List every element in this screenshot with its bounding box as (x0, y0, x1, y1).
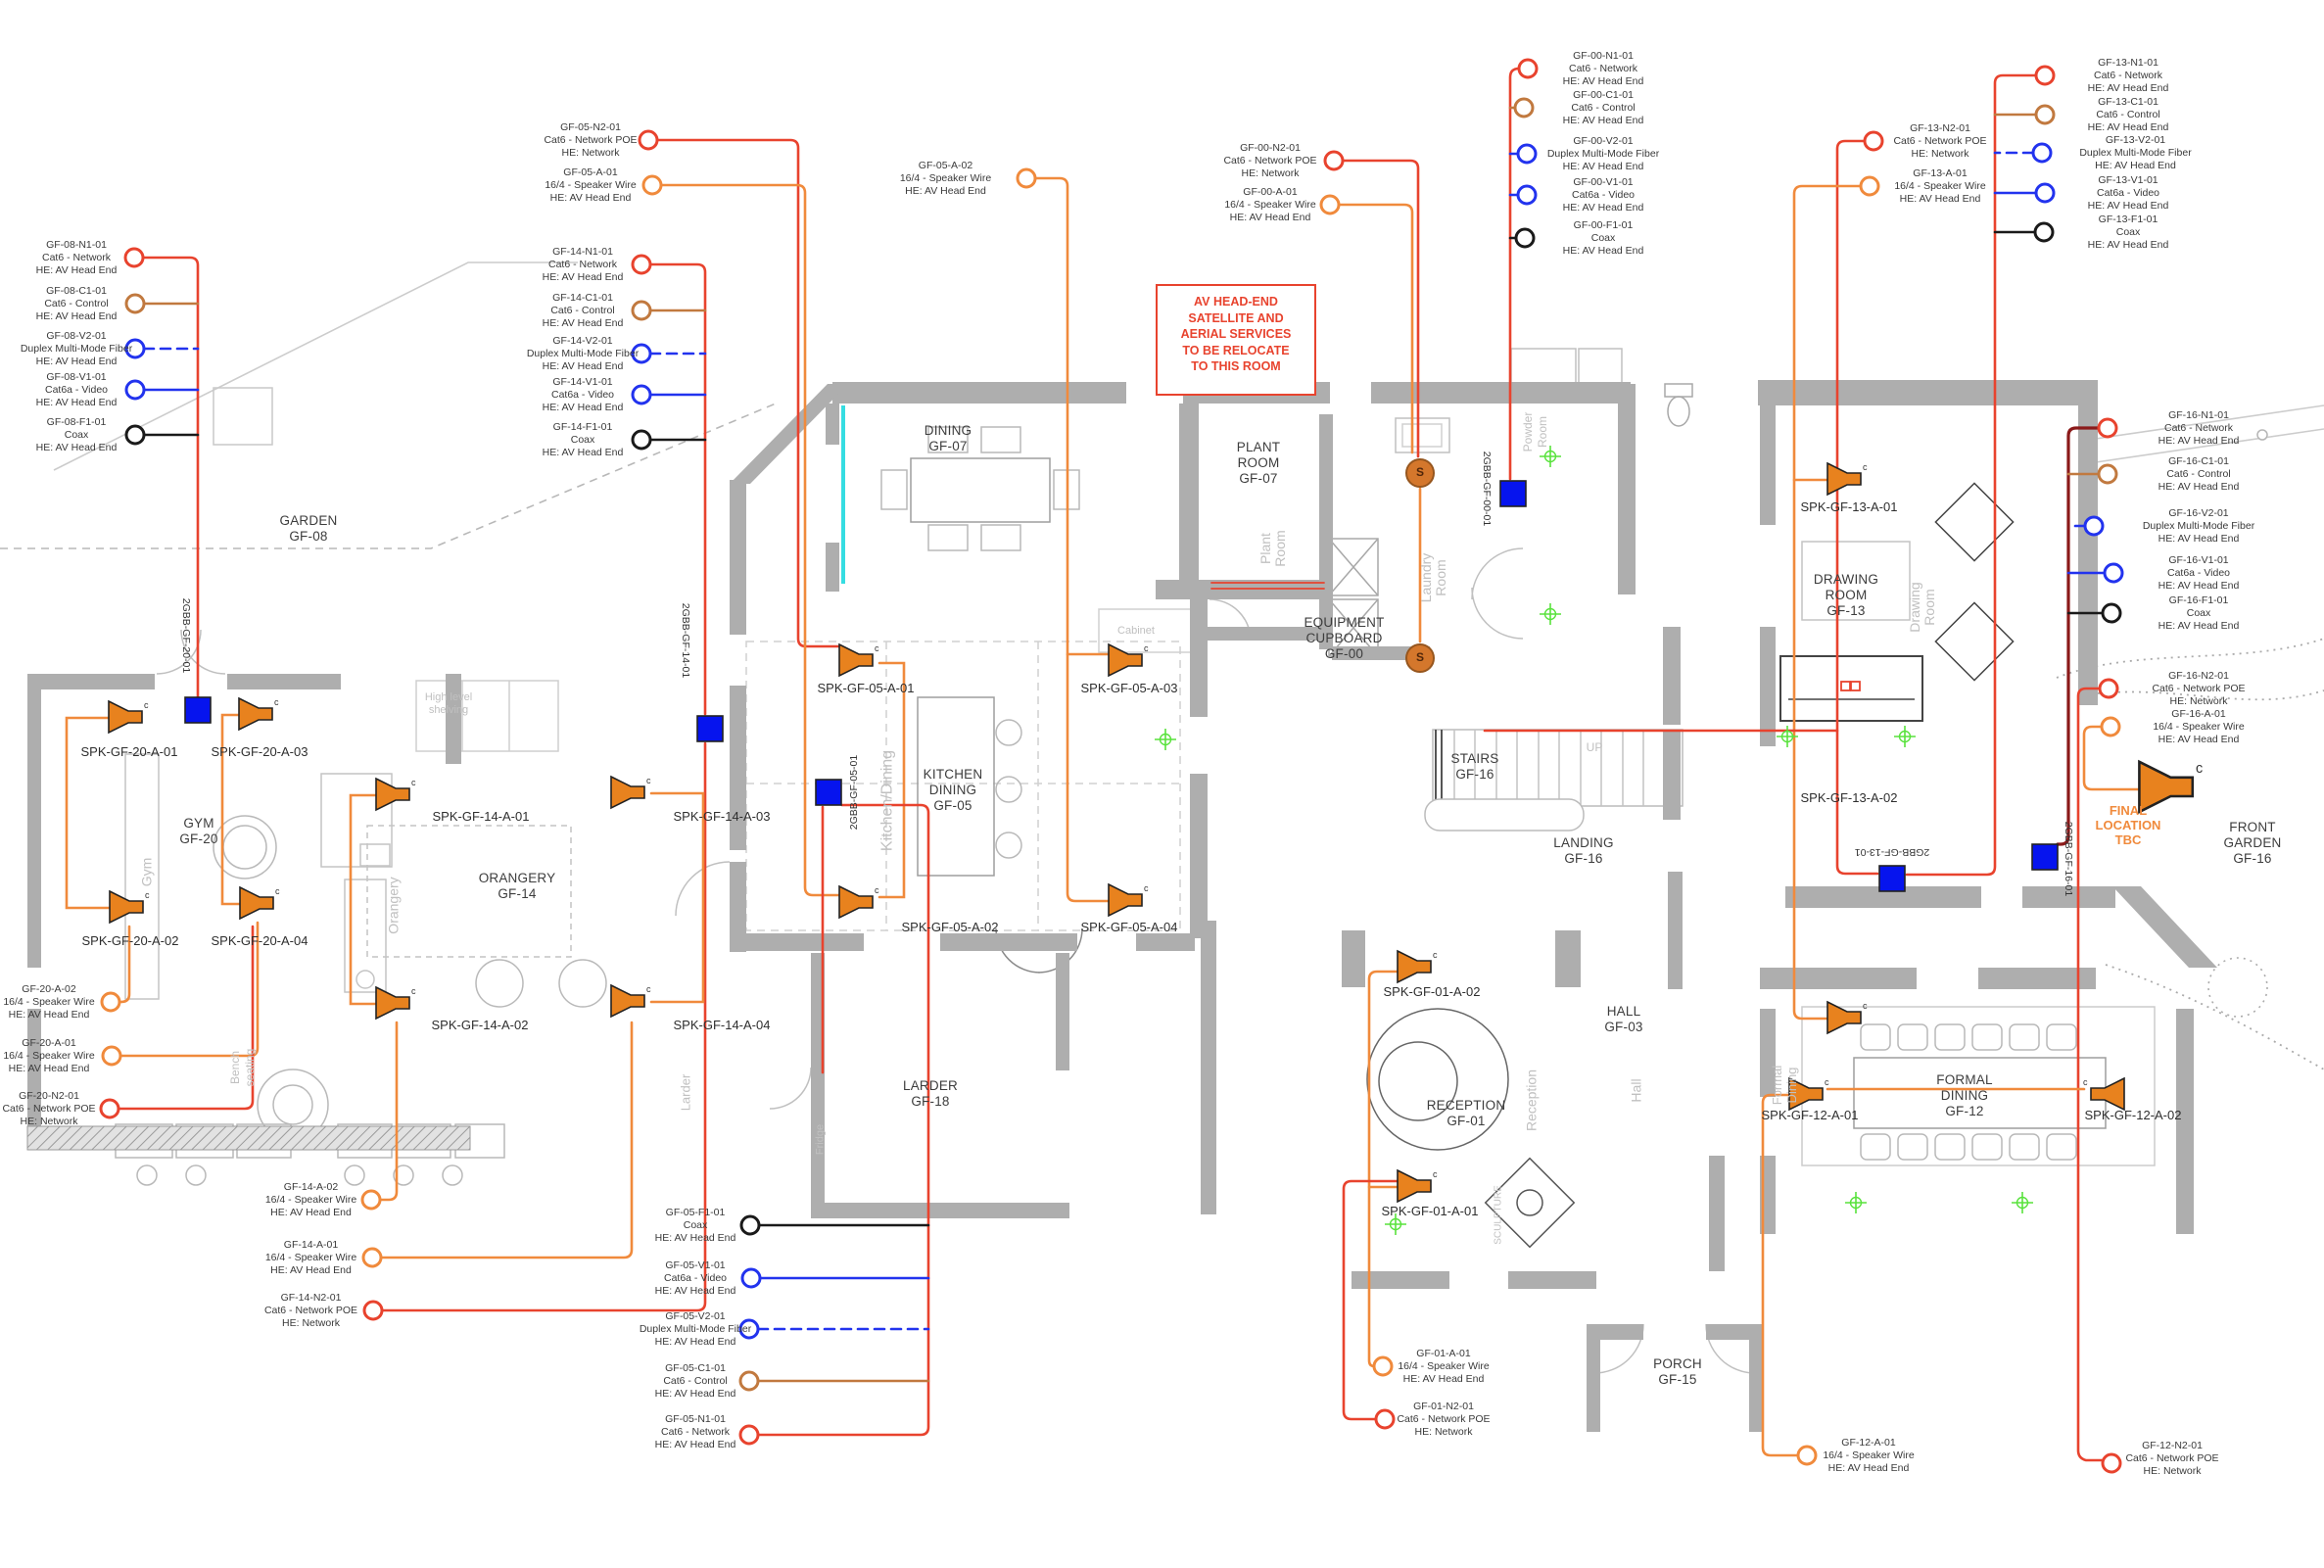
cable-terminals (101, 60, 2122, 1472)
speaker-icon-spk-gf-05-a-01 (839, 643, 879, 676)
cable-drop-label: GF-05-A-0216/4 - Speaker WireHE: AV Head… (875, 160, 1017, 198)
underlay-label-kitchen-dining: Kitchen/Dining (880, 723, 895, 879)
floor-plan-canvas: c c (0, 0, 2324, 1568)
room-label-formal-dining: FORMAL DININGGF-12 (1925, 1072, 2004, 1119)
ceiling-marker-icon (1155, 729, 1176, 750)
cable-drop-label: GF-05-V1-01Cat6a - VideoHE: AV Head End (612, 1259, 779, 1298)
room-label-front-garden: FRONT GARDENGF-16 (2208, 820, 2297, 867)
cable-drop-label: GF-13-V1-01Cat6a - VideoHE: AV Head End (2055, 174, 2202, 213)
underlay-label-drawing-room: Drawing Room (1908, 566, 1937, 648)
speaker-label: SPK-GF-01-A-01 (1366, 1204, 1494, 1218)
underlay-label-cabinet: Cabinet (1097, 624, 1175, 639)
underlay-label-bench-seating: Bench seating (228, 1035, 258, 1100)
underlay-label-high-level-shelving: High level shelving (414, 691, 483, 717)
underlay-label-powder-room: Powder Room (1521, 397, 1550, 467)
room-label-orangery: ORANGERYGF-14 (453, 871, 581, 902)
cable-drop-label: GF-01-A-0116/4 - Speaker WireHE: AV Head… (1375, 1348, 1512, 1386)
panel-2gbb-gf-16-01 (2032, 844, 2058, 870)
panel-label-2gbb-gf-14-01: 2GBB-GF-14-01 (680, 587, 691, 694)
room-label-equipment-cupboard: EQUIPMENT CUPBOARDGF-00 (1288, 615, 1400, 662)
cable-drop-label: GF-13-F1-01CoaxHE: AV Head End (2055, 214, 2202, 252)
cable-drop-label: GF-12-N2-01Cat6 - Network POEHE: Network (2104, 1440, 2241, 1478)
cable-drop-label: GF-05-V2-01Duplex Multi-Mode FiberHE: AV… (612, 1310, 779, 1349)
cable-drop-label: GF-14-A-0216/4 - Speaker WireHE: AV Head… (235, 1181, 387, 1219)
underlay-label-sculpture: SCULPTURE (1492, 1171, 1506, 1259)
underlay-label-fridge: Fridge (814, 1111, 829, 1169)
underlay-label-plant-room: Plant Room (1258, 514, 1288, 583)
cable-drop-label: GF-14-F1-01CoaxHE: AV Head End (499, 421, 666, 459)
cable-drop-label: GF-05-C1-01Cat6 - ControlHE: AV Head End (612, 1362, 779, 1401)
cable-drop-label: GF-08-N1-01Cat6 - NetworkHE: AV Head End (0, 239, 153, 277)
speaker-label: SPK-GF-20-A-01 (66, 744, 193, 759)
cable-drop-label: GF-12-A-0116/4 - Speaker WireHE: AV Head… (1800, 1437, 1937, 1475)
panel-2gbb-gf-05-01 (816, 780, 841, 805)
cable-drop-label: GF-16-N2-01Cat6 - Network POEHE: Network (2125, 670, 2272, 708)
ceiling-marker-icon (1845, 1192, 1867, 1213)
panel-2gbb-gf-13-01 (1879, 866, 1905, 891)
cable-drop-label: GF-00-V1-01Cat6a - VideoHE: AV Head End (1540, 176, 1667, 214)
speaker-icon-spk-gf-05-a-04 (1109, 883, 1149, 916)
speaker-icon-spk-gf-14-a-02 (376, 986, 416, 1019)
speaker-label: SPK-GF-05-A-04 (1066, 920, 1193, 934)
speaker-label: SPK-GF-20-A-03 (196, 744, 323, 759)
cable-drop-label: GF-20-N2-01Cat6 - Network POEHE: Network (0, 1090, 98, 1128)
speaker-icon-spk-gf-14-a-04 (611, 984, 651, 1017)
cable-drop-label: GF-13-N1-01Cat6 - NetworkHE: AV Head End (2055, 57, 2202, 95)
satellite-point-label: S (1416, 650, 1424, 664)
cable-drop-label: GF-08-C1-01Cat6 - ControlHE: AV Head End (0, 285, 153, 323)
panel-label-2gbb-gf-00-01: 2GBB-GF-00-01 (1481, 435, 1493, 543)
cable-drop-label: GF-05-N1-01Cat6 - NetworkHE: AV Head End (612, 1413, 779, 1451)
underlay-label-gym: Gym (140, 843, 155, 902)
speaker-label: SPK-GF-05-A-03 (1066, 681, 1193, 695)
speaker-icon-spk-gf-14-a-01 (376, 778, 416, 810)
satellite-point-label: S (1416, 465, 1424, 479)
underlay-label-formal-dining: Formal Dining (1770, 1047, 1799, 1123)
room-label-garden: GARDENGF-08 (245, 513, 372, 545)
speaker-label: SPK-GF-13-A-01 (1785, 499, 1913, 514)
room-label-plant-room: PLANT ROOMGF-07 (1219, 440, 1298, 487)
cable-drop-label: GF-13-V2-01Duplex Multi-Mode FiberHE: AV… (2055, 134, 2216, 172)
cable-drop-label: GF-14-V2-01Duplex Multi-Mode FiberHE: AV… (499, 335, 666, 373)
cable-drop-label: GF-00-C1-01Cat6 - ControlHE: AV Head End (1540, 89, 1667, 127)
cable-drop-label: GF-16-V2-01Duplex Multi-Mode FiberHE: AV… (2115, 507, 2282, 546)
cable-drop-label: GF-00-N1-01Cat6 - NetworkHE: AV Head End (1540, 50, 1667, 88)
speaker-label: SPK-GF-05-A-02 (886, 920, 1014, 934)
speaker-label: SPK-GF-14-A-03 (658, 809, 785, 824)
cable-drop-label: GF-00-F1-01CoaxHE: AV Head End (1540, 219, 1667, 258)
underlay-label-up: UP (1580, 740, 1609, 755)
ceiling-marker-icon (1540, 603, 1561, 625)
speaker-icon-spk-gf-01-a-01 (1398, 1169, 1438, 1202)
cable-drop-label: GF-13-N2-01Cat6 - Network POEHE: Network (1880, 122, 2000, 161)
cable-drop-label: GF-13-C1-01Cat6 - ControlHE: AV Head End (2055, 96, 2202, 134)
room-label-kitchen-dining: KITCHEN DININGGF-05 (914, 767, 992, 814)
cable-drop-label: GF-16-A-0116/4 - Speaker WireHE: AV Head… (2125, 708, 2272, 746)
panel-label-2gbb-gf-13-01: 2GBB-GF-13-01 (1838, 846, 1946, 858)
room-label-landing: LANDINGGF-16 (1544, 835, 1623, 867)
panel-label-2gbb-gf-05-01: 2GBB-GF-05-01 (848, 738, 860, 846)
cable-drop-label: GF-16-N1-01Cat6 - NetworkHE: AV Head End (2125, 409, 2272, 448)
cable-drop-label: GF-01-N2-01Cat6 - Network POEHE: Network (1375, 1401, 1512, 1439)
cable-drop-label: GF-20-A-0116/4 - Speaker WireHE: AV Head… (0, 1037, 98, 1075)
floor-plan-page: c c (0, 0, 2324, 1568)
speaker-label: SPK-GF-20-A-04 (196, 933, 323, 948)
speaker-icon-spk-gf-20-a-04 (240, 886, 280, 919)
devices (101, 60, 2203, 1472)
speaker-icon-spk-gf-13-a-01 (1827, 462, 1868, 495)
room-label-stairs: STAIRSGF-16 (1436, 751, 1514, 783)
room-label-dining: DININGGF-07 (881, 423, 1015, 454)
cable-drop-label: GF-16-C1-01Cat6 - ControlHE: AV Head End (2125, 455, 2272, 494)
panel-label-2gbb-gf-20-01: 2GBB-GF-20-01 (180, 582, 192, 689)
speaker-icon-spk-gf-01-a-02 (1398, 950, 1438, 982)
room-label-reception: RECEPTIONGF-01 (1417, 1098, 1515, 1129)
speaker-icon-spk-gf-05-a-02 (839, 885, 879, 918)
speaker-label: SPK-GF-14-A-01 (417, 809, 545, 824)
cable-drop-label: GF-14-N2-01Cat6 - Network POEHE: Network (235, 1292, 387, 1330)
ceiling-marker-icon (2012, 1192, 2033, 1213)
speaker-label: SPK-GF-14-A-04 (658, 1018, 785, 1032)
room-label-gym: GYMGF-20 (160, 816, 238, 847)
speaker-label: SPK-GF-20-A-02 (67, 933, 194, 948)
room-label-larder: LARDERGF-18 (891, 1078, 970, 1110)
speaker-label: SPK-GF-14-A-02 (416, 1018, 544, 1032)
cable-drop-label: GF-00-A-0116/4 - Speaker WireHE: AV Head… (1197, 186, 1344, 224)
speaker-icon-spk-gf-14-a-03 (611, 776, 651, 808)
panel-2gbb-gf-00-01 (1500, 481, 1526, 506)
relocation-note: AV HEAD-ENDSATELLITE ANDAERIAL SERVICEST… (1156, 284, 1316, 396)
underlay-label-laundry-room: Laundry Room (1419, 541, 1448, 615)
cable-drop-label: GF-08-V1-01Cat6a - VideoHE: AV Head End (0, 371, 153, 409)
room-label-hall: HALLGF-03 (1585, 1004, 1663, 1035)
cable-drop-label: GF-16-F1-01CoaxHE: AV Head End (2125, 594, 2272, 633)
cable-drop-label: GF-20-A-0216/4 - Speaker WireHE: AV Head… (0, 983, 98, 1022)
final-location-note: FINALLOCATIONTBC (2074, 803, 2182, 847)
cable-drop-label: GF-14-N1-01Cat6 - NetworkHE: AV Head End (499, 246, 666, 284)
wire-gf14-top (650, 264, 705, 714)
panel-2gbb-gf-20-01 (185, 697, 211, 723)
cable-drop-label: GF-00-V2-01Duplex Multi-Mode FiberHE: AV… (1540, 135, 1667, 173)
room-label-porch: PORCHGF-15 (1638, 1356, 1717, 1388)
speaker-label: SPK-GF-13-A-02 (1785, 790, 1913, 805)
ceiling-marker-icon (1894, 726, 1916, 747)
cable-drop-label: GF-14-A-0116/4 - Speaker WireHE: AV Head… (235, 1239, 387, 1277)
speaker-label: SPK-GF-05-A-01 (802, 681, 929, 695)
cable-drop-label: GF-16-V1-01Cat6a - VideoHE: AV Head End (2125, 554, 2272, 593)
underlay-label-orangery: Orangery (387, 852, 402, 960)
cable-drop-label: GF-08-V2-01Duplex Multi-Mode FiberHE: AV… (0, 330, 153, 368)
speaker-label: SPK-GF-01-A-02 (1368, 984, 1495, 999)
underlay-label-hall: Hall (1630, 1062, 1644, 1120)
underlay-label-larder: Larder (679, 1054, 693, 1132)
cable-drop-label: GF-05-N2-01Cat6 - Network POEHE: Network (507, 121, 674, 160)
room-label-drawing-room: DRAWING ROOMGF-13 (1805, 572, 1887, 619)
cable-drop-label: GF-05-F1-01CoaxHE: AV Head End (612, 1207, 779, 1245)
cable-drop-label: GF-14-V1-01Cat6a - VideoHE: AV Head End (499, 376, 666, 414)
wire-gf00-main (1510, 69, 1519, 479)
cable-drop-label: GF-13-A-0116/4 - Speaker WireHE: AV Head… (1880, 167, 2000, 206)
panel-2gbb-gf-14-01 (697, 716, 723, 741)
cable-drop-label: GF-08-F1-01CoaxHE: AV Head End (0, 416, 153, 454)
speaker-icon-spk-gf-20-a-03 (239, 697, 279, 730)
speaker-label: SPK-GF-12-A-01 (1746, 1108, 1873, 1122)
speaker-icon-spk-gf-05-a-03 (1109, 643, 1149, 676)
speaker-icon-spk-gf-20-a-01 (109, 700, 149, 733)
speaker-label: SPK-GF-12-A-02 (2069, 1108, 2197, 1122)
panel-label-2gbb-gf-16-01: 2GBB-GF-16-01 (2063, 805, 2074, 913)
underlay-label-reception: Reception (1525, 1047, 1540, 1155)
cable-drop-label: GF-14-C1-01Cat6 - ControlHE: AV Head End (499, 292, 666, 330)
cable-drop-label: GF-05-A-0116/4 - Speaker WireHE: AV Head… (507, 166, 674, 205)
cable-drop-label: GF-00-N2-01Cat6 - Network POEHE: Network (1197, 142, 1344, 180)
